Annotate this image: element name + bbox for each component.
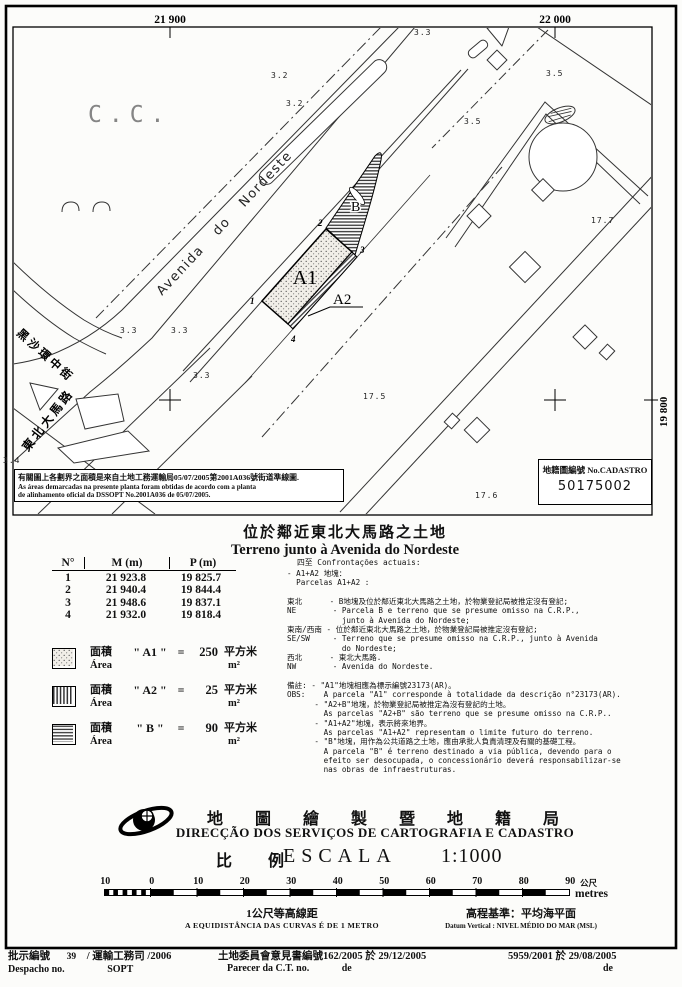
- col-n: N°: [52, 557, 85, 569]
- despacho-no: 39: [67, 952, 77, 962]
- confrontations-line: [287, 672, 621, 681]
- grid-label-21900: 21 900: [154, 14, 186, 26]
- ref-number: 5959/2001 於 29/08/2005: [508, 951, 617, 963]
- cell-m: 21 932.0: [84, 609, 168, 621]
- datum-note-zh: 高程基準：平均海平面: [392, 905, 650, 921]
- despacho-label-pt: Despacho no.: [8, 964, 65, 975]
- footer-despacho: 批示編號 39 / 運輸工務司 /2006 Despacho no. SOPT: [8, 951, 171, 975]
- coordinates-table-header: N° M (m) P (m): [52, 557, 236, 571]
- cell-m: 21 923.8: [84, 572, 168, 584]
- legend-unit-pt: m²: [218, 697, 264, 710]
- scale-tick: 60: [408, 876, 455, 887]
- scale-label-pt: ESCALA: [283, 845, 397, 868]
- confrontations-line: A parcela "B" é terreno destinado a via …: [287, 747, 621, 756]
- confrontations-line: [287, 588, 621, 597]
- cell-m: 21 940.4: [84, 584, 168, 596]
- contour-note-zh: 1公尺等高線距: [132, 905, 432, 921]
- grid-label-19800: 19 800: [658, 396, 670, 427]
- legend-name: A2: [126, 684, 174, 697]
- confrontations-line: junto à Avenida do Nordeste;: [287, 616, 621, 625]
- cell-n: 4: [52, 609, 84, 621]
- confrontations-line: NE - Parcela B e terreno que se presume …: [287, 606, 621, 615]
- plan-title-zh: 位於鄰近東北大馬路之土地: [145, 521, 545, 542]
- confrontations-line: 東南/西南 - 位於鄰近東北大馬路之土地，於物業登記局被推定沒有登記;: [287, 625, 621, 634]
- cell-p: 19 818.4: [168, 609, 234, 621]
- legend-value: 250: [188, 646, 218, 659]
- cadastro-label: 地籍圖編號 No.CADASTRO: [539, 464, 651, 476]
- cell-n: 2: [52, 584, 84, 596]
- confrontations-line: do Nordeste;: [287, 644, 621, 653]
- vertex-3: 3: [359, 245, 365, 255]
- despacho-label-zh: 批示編號: [8, 951, 50, 962]
- contour-note-pt: A EQUIDISTÂNCIA DAS CURVAS É DE 1 METRO: [132, 921, 432, 930]
- legend-value: 25: [188, 684, 218, 697]
- parcel-a1-label: A1: [293, 267, 317, 289]
- confrontations-header: 四至 Confrontações actuais:: [297, 557, 421, 568]
- building-diamonds: [444, 24, 614, 443]
- district-label: C.C.: [88, 102, 171, 128]
- confrontations-line: - "A2+B"地塊，於物業登記局被推定為沒有登記的土地。: [287, 700, 621, 709]
- parcel-a2-leader: [308, 307, 363, 316]
- scale-tick: 70: [454, 876, 501, 887]
- plan-title: 位於鄰近東北大馬路之土地 Terreno junto à Avenida do …: [145, 521, 545, 559]
- cell-n: 1: [52, 572, 84, 584]
- legend-unit-zh: 平方米: [218, 646, 264, 659]
- confrontations-line: 備註: - "A1"地塊相應為標示編號23173(AR)。: [287, 681, 621, 690]
- parecer-zh: 土地委員會意見書編號162/2005 於 29/12/2005: [218, 951, 426, 963]
- spot-height: 3.3: [120, 326, 137, 335]
- despacho-rest: / 運輸工務司 /2006: [87, 951, 172, 962]
- confrontations-line: NW - Avenida do Nordeste.: [287, 662, 621, 671]
- table-row: 3 21 948.6 19 837.1: [52, 597, 236, 609]
- confrontations-line: Parcelas A1+A2 :: [287, 578, 621, 587]
- spot-height: 3.2: [271, 71, 288, 80]
- confrontations-line: - "A1+A2"地塊，表示將來地界。: [287, 719, 621, 728]
- scale-ratio: 1:1000: [441, 845, 503, 868]
- table-row: 1 21 923.8 19 825.7: [52, 572, 236, 584]
- alignment-note-box: 有關圖上各劃界之面積是來自土地工務運輸局05/07/2005第2001A036號…: [14, 469, 344, 502]
- ne-axis-line: [432, 30, 548, 148]
- cell-n: 3: [52, 597, 84, 609]
- spot-height: 17.7: [591, 216, 614, 225]
- scale-tick: 20: [222, 876, 269, 887]
- legend-eq: =: [174, 722, 188, 735]
- despacho-dept-pt: SOPT: [107, 964, 133, 975]
- cell-p: 19 837.1: [168, 597, 234, 609]
- confrontations-line: nas obras de infraestruturas.: [287, 765, 621, 774]
- legend-unit-zh: 平方米: [218, 684, 264, 697]
- spot-height: 3.3: [193, 371, 210, 380]
- scale-tick: 0: [129, 876, 176, 887]
- legend-zh: 面積: [90, 684, 126, 697]
- legend-name: A1: [126, 646, 174, 659]
- legend-unit-pt: m²: [218, 659, 264, 672]
- spot-height: 3.3: [171, 326, 188, 335]
- cadastro-number: 50175002: [539, 479, 651, 494]
- spot-height: 17.5: [363, 392, 386, 401]
- legend-unit-zh: 平方米: [218, 722, 264, 735]
- vertex-4: 4: [290, 334, 296, 344]
- col-p: P (m): [170, 557, 236, 569]
- ne-road-line: [537, 27, 682, 138]
- scale-tick: 10: [82, 876, 129, 887]
- scale-tick: 30: [268, 876, 315, 887]
- scale-tick: 80: [501, 876, 548, 887]
- ref-de: de: [603, 963, 613, 974]
- confrontations-line: As parcelas "A2+B" são terreno que se pr…: [287, 709, 621, 718]
- scale-tick: 40: [315, 876, 362, 887]
- confrontations-line: 東北 - B地塊及位於鄰近東北大馬路之土地，於物業登記局被推定沒有登記;: [287, 597, 621, 606]
- confrontations-line: As parcelas "A1+A2" representam o limite…: [287, 728, 621, 737]
- vertex-2: 2: [317, 218, 323, 228]
- agency-name-pt: DIRECÇÃO DOS SERVIÇOS DE CARTOGRAFIA E C…: [95, 825, 655, 841]
- spot-height: 3.5: [546, 69, 563, 78]
- footer-parecer: 土地委員會意見書編號162/2005 於 29/12/2005 Parecer …: [218, 951, 426, 974]
- spot-height: 3.2: [286, 99, 303, 108]
- scale-bar: [104, 888, 574, 898]
- vertex-1: 1: [250, 296, 255, 306]
- legend-pt: Área: [90, 735, 126, 748]
- legend-zh: 面積: [90, 722, 126, 735]
- parecer-de: de: [342, 963, 352, 974]
- cell-m: 21 948.6: [84, 597, 168, 609]
- note-pt2: de alinhamento oficial da DSSOPT No.2001…: [18, 491, 340, 499]
- datum-note-pt: Datum Vertical : NIVEL MÉDIO DO MAR (MSL…: [392, 922, 650, 930]
- legend-eq: =: [174, 684, 188, 697]
- note-zh: 有關圖上各劃界之面積是來自土地工務運輸局05/07/2005第2001A036號…: [18, 472, 340, 483]
- confrontations-block: - A1+A2 地塊： Parcelas A1+A2 :東北 - B地塊及位於鄰…: [287, 569, 621, 775]
- legend-item-a2: 面積 A2 = 25 平方米 Área m²: [52, 684, 292, 718]
- legend-unit-pt: m²: [218, 735, 264, 748]
- coordinates-table: N° M (m) P (m) 1 21 923.8 19 825.7 2 21 …: [52, 557, 236, 621]
- legend-zh: 面積: [90, 646, 126, 659]
- legend-eq: =: [174, 646, 188, 659]
- scale-tick: 50: [361, 876, 408, 887]
- table-row: 2 21 940.4 19 844.4: [52, 584, 236, 596]
- scale-bar-ticks: 100102030405060708090: [82, 876, 594, 887]
- table-row: 4 21 932.0 19 818.4: [52, 609, 236, 621]
- confrontations-line: - A1+A2 地塊：: [287, 569, 621, 578]
- cell-p: 19 825.7: [168, 572, 234, 584]
- spot-height: 3.4: [3, 456, 20, 465]
- legend-name: B: [126, 722, 174, 735]
- scale-unit-pt: metres: [575, 888, 608, 900]
- note-pt1: As áreas demarcadas na presente planta f…: [18, 483, 340, 491]
- parcel-b-label: B: [351, 200, 360, 215]
- spot-height: 17.6: [475, 491, 498, 500]
- confrontations-line: OBS: A parcela "A1" corresponde à totali…: [287, 690, 621, 699]
- cadastral-plan-page: 21 900 22 000 19 800 C.C.: [0, 0, 682, 987]
- legend-value: 90: [188, 722, 218, 735]
- parcel-a2-label: A2: [333, 292, 351, 308]
- grid-label-22000: 22 000: [539, 14, 571, 26]
- confrontations-line: 西北 - 東北大馬路.: [287, 653, 621, 662]
- footer-ref: 5959/2001 於 29/08/2005 de: [508, 951, 617, 974]
- confrontations-line: efeito ser desocupada, o concessionário …: [287, 756, 621, 765]
- cadastro-box: 地籍圖編號 No.CADASTRO 50175002: [538, 459, 652, 505]
- legend-pt: Área: [90, 659, 126, 672]
- legend-item-a1: 面積 A1 = 250 平方米 Área m²: [52, 646, 292, 680]
- spot-height: 3.3: [414, 28, 431, 37]
- scale-tick: 10: [175, 876, 222, 887]
- cell-p: 19 844.4: [168, 584, 234, 596]
- swatch-vlines: [52, 686, 76, 707]
- swatch-hlines: [52, 724, 76, 745]
- roundabout-circle: [529, 123, 597, 191]
- legend-pt: Área: [90, 697, 126, 710]
- street-avenida-label: Avenida do Nordeste: [154, 148, 296, 298]
- legend-item-b: 面積 B = 90 平方米 Área m²: [52, 722, 292, 756]
- spot-height: 3.5: [464, 117, 481, 126]
- street-heisha-label: 黑沙環中街: [14, 326, 77, 385]
- confrontations-line: - "B"地塊，用作為公共道路之土地，應由承批人負責清理及有關的基礎工程。: [287, 737, 621, 746]
- col-m: M (m): [85, 557, 170, 569]
- confrontations-line: SE/SW - Terreno que se presume omisso na…: [287, 634, 621, 643]
- parecer-label-pt: Parecer da C.T. no.: [227, 963, 309, 974]
- swatch-stipple: [52, 648, 76, 669]
